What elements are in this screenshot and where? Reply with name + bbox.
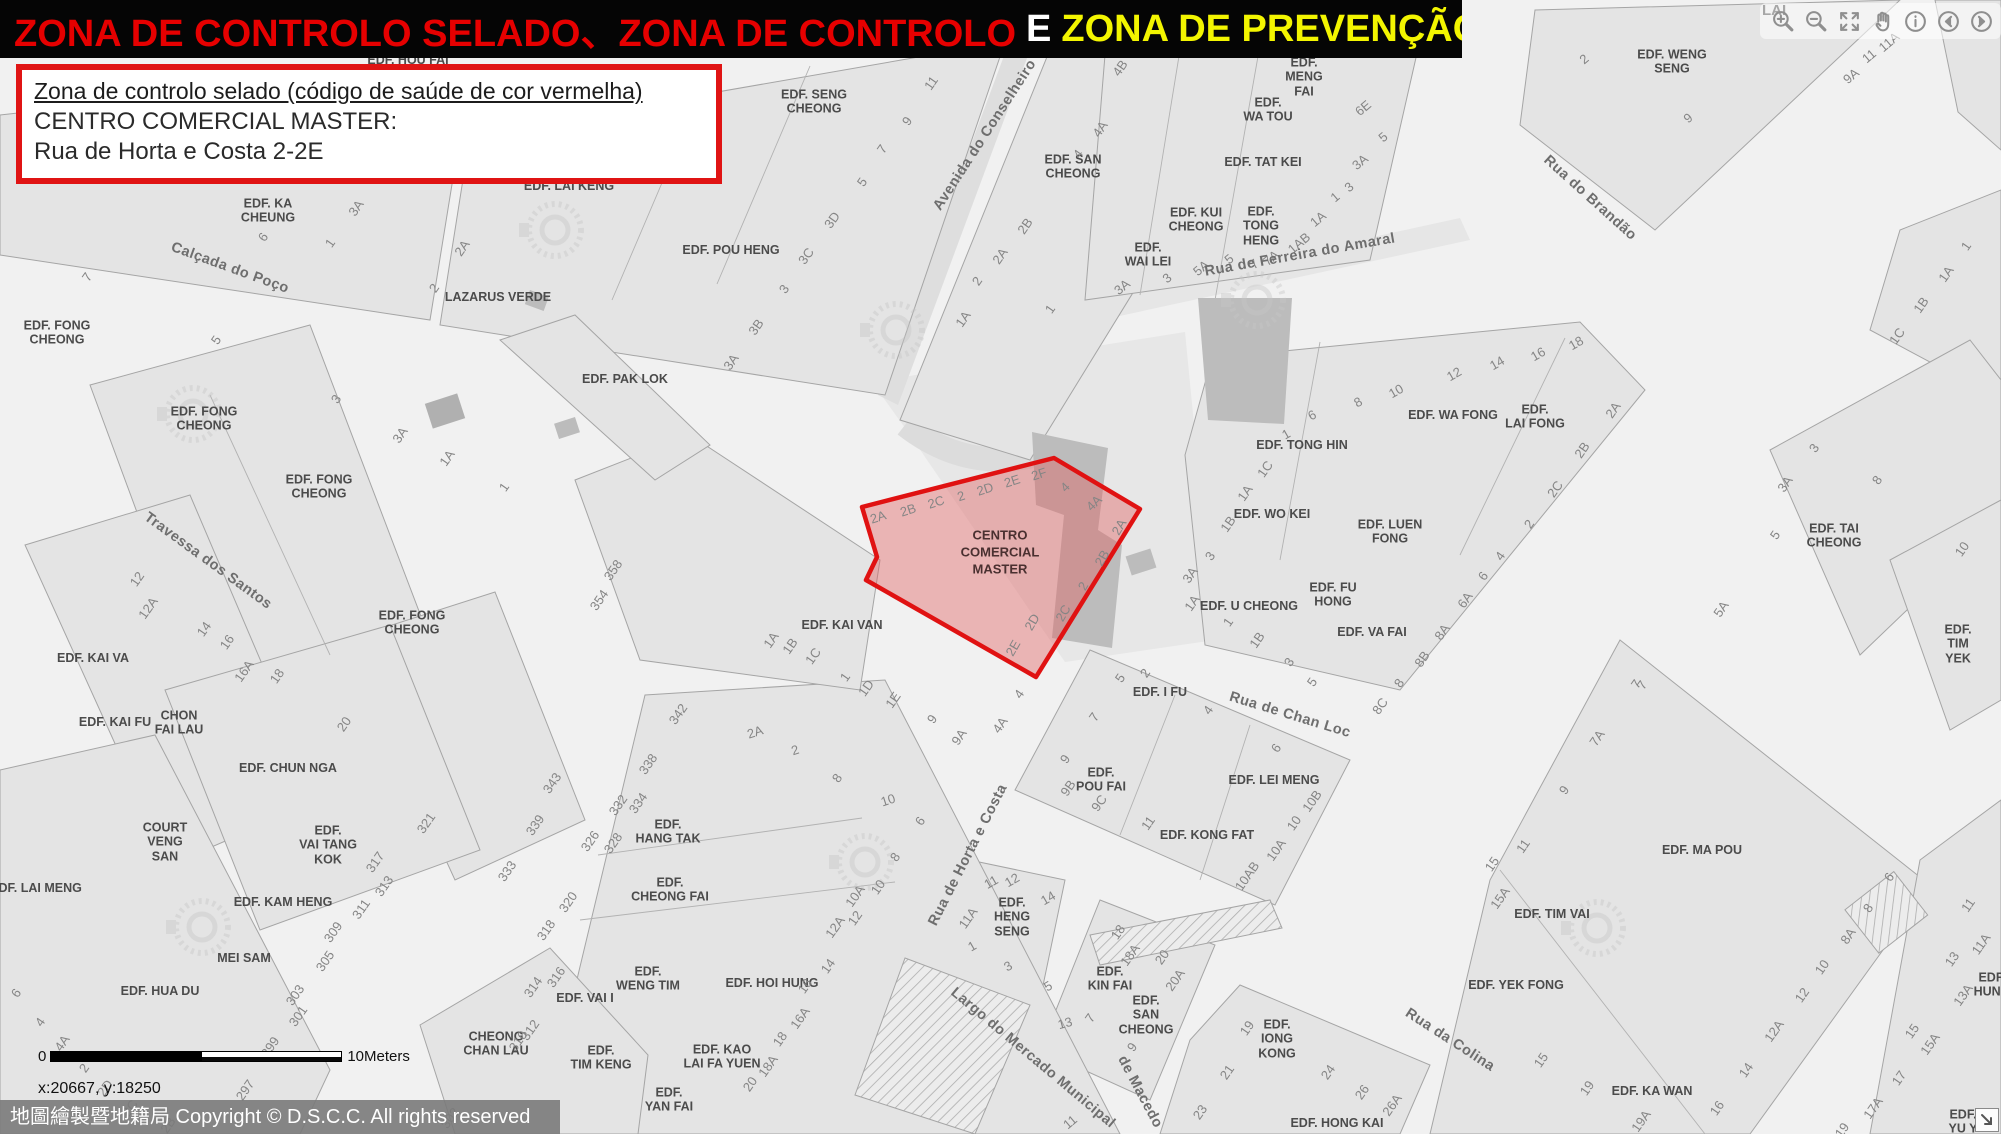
parcel-number: 2 [789, 742, 801, 759]
parcel-number: 2 [1137, 666, 1153, 681]
parcel-number: 7 [1628, 677, 1644, 692]
building-label: COURT VENG SAN [143, 820, 187, 863]
parcel-number: 2A [989, 245, 1010, 267]
parcel-number: 2A [1602, 399, 1623, 421]
building-label: EDF. VAI I [556, 991, 613, 1005]
parcel-number: 3A [1111, 276, 1133, 298]
building-label: EDF. WA TOU [1243, 96, 1292, 125]
parcel-number: 5 [1767, 528, 1783, 543]
parcel-number: 316 [544, 964, 569, 990]
parcel-number: 14 [818, 956, 839, 976]
parcel-number: 333 [495, 858, 520, 884]
building-label: EDF. WAI LEI [1125, 241, 1172, 270]
parcel-number: 320 [556, 889, 581, 915]
info-button[interactable] [1902, 8, 1929, 35]
parcel-number: 328 [601, 830, 626, 856]
parcel-number: 309 [321, 919, 346, 945]
parcel-number: 339 [523, 812, 548, 838]
scale-start-label: 0 [38, 1048, 46, 1065]
parcel-number: 2 [1521, 517, 1537, 532]
building-label: EDF. FONG CHEONG [171, 405, 238, 434]
parcel-number: 6 [8, 986, 24, 1001]
parcel-number: 14 [1487, 353, 1507, 373]
parcel-number: 5 [208, 333, 224, 348]
parcel-number: 8A [1431, 621, 1452, 643]
building-label: EDF. HONG KAI [1290, 1116, 1383, 1130]
parcel-number: 3 [1159, 270, 1174, 286]
building-label: EDF. MA POU [1662, 843, 1742, 857]
parcel-number: 14 [1736, 1060, 1757, 1080]
building-label: EDF. TAT KEI [1224, 155, 1301, 169]
parcel-number: 3 [328, 392, 344, 407]
resize-arrow-icon [1980, 1113, 1994, 1127]
parcel-number: 15A [1487, 884, 1513, 912]
pan-button[interactable] [1869, 8, 1896, 35]
map-toolbar [1760, 3, 2001, 39]
parcel-number: 1A [1935, 263, 1956, 285]
previous-view-icon [1936, 9, 1961, 34]
building-label: EDF. KAI VA [57, 651, 129, 665]
full-extent-icon [1837, 9, 1862, 34]
parcel-number: 18 [267, 666, 288, 686]
parcel-number: 19 [1832, 1120, 1853, 1134]
parcel-number: 16 [1528, 344, 1548, 364]
building-label: EDF. LEI MENG [1229, 773, 1320, 787]
parcel-number: 1 [1220, 615, 1236, 630]
parcel-number: 4A [1083, 492, 1105, 514]
parcel-number: 1AB [1285, 229, 1313, 256]
title-separator: E [1016, 8, 1061, 51]
building-label: EDF. KAM HENG [234, 895, 333, 909]
parcel-number: 13 [1056, 1014, 1074, 1032]
building-label: CHON FAI LAU [155, 709, 204, 738]
parcel-number: 16A [787, 1004, 813, 1032]
info-line-address: Rua de Horta e Costa 2-2E [34, 138, 704, 166]
parcel-number: 10 [1952, 539, 1973, 559]
parcel-number: 10 [1386, 381, 1406, 401]
building-label: EDF. PAK LOK [582, 372, 668, 386]
building-label: EDF. TAI CHEONG [1807, 522, 1862, 551]
building-label: EDF. U CHEONG [1200, 599, 1298, 613]
parcel-number: 4B [1109, 57, 1130, 79]
parcel-number: 6 [255, 230, 271, 245]
building-label: EDF. HENG SENG [994, 895, 1030, 938]
parcel-number: 2D [975, 479, 995, 498]
info-line-zone-type: Zona de controlo selado (código de saúde… [34, 78, 704, 105]
parcel-number: 3A [1774, 473, 1795, 495]
building-label: EDF. YEK FONG [1468, 978, 1564, 992]
building-label: EDF. CHUN NGA [239, 761, 337, 775]
street-label: de Macedo [1114, 1053, 1165, 1131]
parcel-number: 317 [363, 849, 388, 875]
parcel-number: 2E [1003, 637, 1024, 658]
parcel-number: 13A [1950, 981, 1976, 1009]
cursor-coordinates: x:20667, y:18250 [38, 1080, 161, 1098]
parcel-number: 11 [1513, 836, 1533, 856]
building-label: EDF. TONG HIN [1256, 438, 1347, 452]
building-label: EDF. IONG KONG [1258, 1017, 1296, 1060]
building-label: EDF. MENG FAI [1285, 55, 1323, 98]
parcel-number: 4 [1200, 703, 1216, 718]
parcel-number: 332 [606, 792, 631, 818]
parcel-number: 7A [1586, 727, 1607, 749]
parcel-number: 18 [770, 1029, 791, 1049]
parcel-number: 10 [879, 791, 897, 810]
parcel-number: 17A [1860, 1094, 1886, 1122]
parcel-number: 1C [1254, 458, 1276, 480]
parcel-number: 12 [1792, 985, 1813, 1005]
parcel-number: 2B [1571, 439, 1592, 461]
parcel-number: 5A [1710, 598, 1731, 620]
map-viewer: EDF. HOU FAIEDF. SENG CHEONGEDF. WENG SE… [0, 0, 2001, 1134]
building-label: EDF. HUNG [1974, 971, 2001, 1000]
building-label: EDF. KA CHEUNG [241, 197, 295, 226]
parcel-number: 1D [855, 677, 877, 699]
parcel-number: 5 [1304, 675, 1320, 690]
building-label: EDF. WO KEI [1234, 507, 1310, 521]
parcel-number: 8C [1369, 695, 1391, 717]
parcel-number: 12 [845, 908, 866, 928]
building-label: EDF. POU HENG [682, 243, 779, 257]
next-view-icon [1969, 9, 1994, 34]
parcel-number: 305 [313, 948, 338, 974]
parcel-number: 3B [745, 316, 766, 338]
street-label: Rua do Brandão [1540, 152, 1639, 244]
parcel-number: 9B [1057, 777, 1078, 799]
parcel-number: 3 [1001, 958, 1015, 975]
parcel-number: 321 [414, 810, 439, 836]
parcel-number: 10 [868, 877, 889, 897]
parcel-number: 9A [948, 726, 969, 748]
parcel-number: 7 [1634, 678, 1650, 693]
parcel-number: 3A [345, 197, 366, 219]
parcel-number: 10A [1263, 836, 1289, 864]
parcel-number: 5 [1112, 671, 1128, 686]
building-label: EDF. KAI FU [79, 715, 151, 729]
parcel-number: 1A [1234, 482, 1255, 504]
parcel-number: 15 [1902, 1021, 1923, 1041]
parcel-number: 311 [349, 896, 373, 922]
parcel-number: 2F [1029, 465, 1048, 484]
parcel-number: 4 [1492, 549, 1508, 564]
street-label: Avenida do Conselheiro [930, 57, 1040, 214]
parcel-number: 16A [231, 657, 257, 685]
parcel-number: 6 [1881, 870, 1897, 885]
parcel-number: 6 [1305, 407, 1319, 424]
parcel-number: 2 [955, 488, 967, 505]
zoom-out-button[interactable] [1803, 8, 1830, 35]
parcel-number: 2B [1014, 215, 1035, 237]
parcel-number: 2C [1052, 602, 1073, 624]
parcel-number: 2D [1021, 611, 1042, 633]
parcel-number: 8 [887, 850, 903, 865]
parcel-number: 18A [1117, 941, 1143, 969]
parcel-number: 3 [1341, 179, 1356, 195]
parcel-number: 12A [135, 594, 161, 622]
parcel-number: 2B [1092, 547, 1113, 568]
parcel-number: 354 [587, 587, 612, 613]
parcel-number: 1B [1246, 629, 1267, 651]
title-yellow-text: ZONA DE PREVENÇÃO [1061, 8, 1462, 51]
parcel-number: 1C [1886, 325, 1908, 347]
building-label: EDF. TONG HENG [1243, 204, 1279, 247]
parcel-number: 20 [1152, 947, 1173, 967]
parcel-number: 3C [795, 245, 817, 267]
zone-info-box: Zona de controlo selado (código de saúde… [16, 64, 722, 184]
building-label: EDF. FU HONG [1309, 581, 1356, 610]
parcel-number: 24 [1318, 1062, 1339, 1082]
building-label: CHEONG CHAN LAU [463, 1030, 528, 1059]
parcel-number: 312 [518, 1017, 543, 1043]
parcel-number: 313 [372, 873, 397, 899]
parcel-number: 1E [882, 689, 903, 711]
parcel-number: 2 [1075, 579, 1092, 593]
parcel-number: 1C [802, 645, 824, 667]
parcel-number: 5 [854, 175, 870, 190]
building-label: EDF. FONG CHEONG [24, 319, 91, 348]
parcel-number: 11 [981, 872, 1000, 892]
building-label: EDF. WENG TIM [616, 965, 680, 994]
parcel-number: 8 [1869, 473, 1885, 488]
parcel-number: 16 [1707, 1098, 1728, 1118]
building-label: EDF. YAN FAI [645, 1086, 693, 1115]
parcel-number: 1A [1307, 208, 1329, 230]
parcel-number: 1B [779, 635, 800, 657]
scale-bar-graphic [50, 1051, 342, 1062]
parcel-number: 6 [1475, 569, 1491, 584]
parcel-number: 9 [899, 114, 915, 129]
parcel-number: 303 [283, 982, 308, 1008]
parcel-number: 1A [436, 447, 457, 469]
parcel-number: 5 [1375, 129, 1390, 145]
parcel-number: 2C [926, 492, 946, 511]
scale-end-label: 10Meters [347, 1048, 410, 1065]
copyright-bar: 地圖繪製暨地籍局 Copyright © D.S.C.C. All rights… [0, 1100, 560, 1134]
building-label: EDF. SENG CHEONG [781, 88, 847, 117]
parcel-number: 3 [1202, 549, 1218, 564]
parcel-number: 11A [955, 905, 980, 932]
parcel-number: 19A [1628, 1107, 1654, 1134]
parcel-number: 1B [1910, 294, 1931, 316]
parcel-number: 6 [1268, 741, 1284, 756]
parcel-number: 11 [921, 73, 941, 93]
parcel-number: 358 [601, 557, 626, 583]
parcel-number: 11 [1859, 46, 1879, 66]
parcel-number: 1 [837, 670, 853, 685]
building-label: EDF. KIN FAI [1088, 965, 1132, 994]
building-label: EDF. HUA DU [121, 984, 200, 998]
parcel-number: 1 [965, 938, 979, 955]
previous-view-button[interactable] [1935, 8, 1962, 35]
parcel-number: 19 [1577, 1078, 1598, 1098]
building-label: EDF. SAN CHEONG [1045, 153, 1102, 182]
parcel-number: 326 [578, 828, 603, 854]
parcel-number: 8A [1837, 925, 1858, 947]
parcel-number: 2A [868, 507, 888, 526]
parcel-number: 8 [1391, 676, 1407, 691]
parcel-number: 11 [1060, 1112, 1080, 1132]
parcel-number: 12 [1444, 364, 1464, 384]
info-icon [1903, 9, 1928, 34]
parcel-number: 26 [1352, 1082, 1373, 1102]
parcel-number: 7 [1246, 256, 1261, 272]
street-label: Travessa dos Santos [141, 509, 275, 612]
parcel-number: 3D [821, 209, 843, 231]
building-label: EDF. TIM KENG [570, 1044, 631, 1073]
parcel-number: 5 [1221, 251, 1236, 267]
street-label: Largo do Mercado Municipal [948, 985, 1119, 1132]
parcel-number: 15 [1531, 1050, 1552, 1070]
resize-handle[interactable] [1975, 1108, 1999, 1132]
parcel-number: 11A [1968, 931, 1993, 958]
parcel-number: 334 [626, 790, 651, 816]
parcel-number: 4A [1089, 118, 1110, 140]
building-label: EDF. VA FAI [1337, 625, 1406, 639]
parcel-number: 4 [1070, 147, 1086, 162]
parcel-number: 18 [1566, 333, 1586, 353]
parcel-number: 1A [1181, 592, 1202, 614]
building-label: EDF. KA WAN [1612, 1084, 1693, 1098]
parcel-number: 9 [924, 712, 940, 727]
parcel-number: 8 [1860, 901, 1876, 916]
parcel-number: 16 [217, 632, 238, 652]
building-label: EDF. VAI TANG KOK [299, 823, 357, 866]
parcel-number: 20 [334, 714, 355, 734]
parcel-number: 3A [389, 424, 410, 446]
parcel-number: 1 [1327, 189, 1342, 205]
zoom-in-button[interactable] [1770, 8, 1797, 35]
parcel-number: 12 [127, 569, 148, 589]
building-label: EDF. TIM YEK [1937, 622, 1980, 665]
building-label: EDF. FONG CHEONG [379, 609, 446, 638]
parcel-number: 13 [1942, 949, 1963, 969]
parcel-number: 4 [1057, 479, 1073, 495]
building-label: EDF. KAO LAI FA YUEN [683, 1043, 760, 1072]
parcel-number: 15A [1917, 1030, 1943, 1058]
parcel-number: 4 [32, 1015, 48, 1030]
building-label: EDF. SAN CHEONG [1119, 993, 1174, 1036]
parcel-number: 9 [1124, 1040, 1140, 1055]
parcel-number: 3A [1349, 151, 1371, 173]
building-label: LAZARUS VERDE [445, 290, 551, 304]
building-label: EDF. I FU [1133, 685, 1187, 699]
parcel-number: 10B [1299, 787, 1325, 815]
parcel-number: 2B [898, 500, 918, 519]
parcel-number: 7 [1086, 710, 1102, 725]
parcel-number: 9C [1088, 792, 1110, 814]
building-label: EDF. LUEN FONG [1358, 518, 1423, 547]
building-label: EDF. FONG CHEONG [286, 473, 353, 502]
parcel-number: 314 [521, 974, 546, 1000]
building-label: EDF. CHEONG FAI [631, 876, 709, 905]
building-label: EDF. POU FAI [1076, 766, 1126, 795]
building-label: EDF. KAI VAN [801, 618, 882, 632]
parcel-number: 7A [1260, 247, 1282, 269]
parcel-number: 2 [1576, 51, 1591, 67]
parcel-number: 5 [1041, 978, 1055, 995]
parcel-number: 6 [912, 814, 928, 829]
parcel-number: 4 [1011, 687, 1027, 702]
parcel-number: 11 [1958, 895, 1978, 915]
parcel-number: 10 [1812, 957, 1833, 977]
parcel-number: 5A [1190, 257, 1212, 279]
parcel-number: 1 [496, 480, 512, 495]
parcel-number: 1 [1279, 426, 1293, 443]
building-label: EDF. KONG FAT [1160, 828, 1254, 842]
parcel-number: 20 [740, 1074, 761, 1094]
parcel-number: 4A [989, 714, 1010, 736]
parcel-number: 2A [1109, 516, 1130, 537]
parcel-number: 10 [1284, 813, 1305, 833]
parcel-number: 21 [1217, 1062, 1238, 1082]
parcel-number: 9 [1680, 110, 1695, 126]
parcel-number: 1 [1958, 239, 1974, 254]
next-view-button[interactable] [1968, 8, 1995, 35]
parcel-number: 2E [1002, 471, 1022, 490]
title-banner: ZONA DE CONTROLO SELADO、ZONA DE CONTROLO… [0, 0, 1462, 58]
full-extent-button[interactable] [1836, 8, 1863, 35]
title-red-text: ZONA DE CONTROLO SELADO、ZONA DE CONTROLO [14, 2, 1016, 57]
parcel-number: 10AB [1232, 859, 1263, 894]
parcel-number: 318 [534, 917, 559, 943]
parcel-number: 338 [636, 751, 661, 777]
parcel-number: 1 [1042, 302, 1058, 317]
building-label: MEI SAM [217, 951, 270, 965]
parcel-number: 8 [1351, 394, 1365, 411]
parcel-number: 2 [426, 281, 442, 296]
parcel-number: 11 [1138, 813, 1158, 833]
street-label: Calçada do Poço [169, 239, 291, 297]
building-label: EDF. WENG SENG [1637, 48, 1706, 77]
parcel-number: 8 [829, 771, 845, 786]
parcel-number: 19 [1237, 1018, 1258, 1038]
street-label: Rua da Colina [1402, 1005, 1497, 1075]
parcel-number: 14 [194, 619, 215, 639]
parcel-number: 26A [1379, 1091, 1405, 1119]
parcel-number: 9A [1840, 65, 1862, 87]
zoom-out-icon [1804, 9, 1829, 34]
parcel-number: 3 [1281, 655, 1297, 670]
street-label: Rua de Horta e Costa [925, 782, 1010, 929]
parcel-number: 310 [506, 1028, 531, 1054]
parcel-number: 15 [1482, 854, 1503, 874]
parcel-number: 12 [1002, 870, 1022, 890]
building-label: EDF. KUI CHEONG [1169, 206, 1224, 235]
building-label: EDF. TIM VAI [1514, 907, 1589, 921]
parcel-number: 3 [776, 282, 792, 297]
scale-bar: 0 10Meters [38, 1048, 410, 1065]
parcel-number: 9 [1057, 752, 1073, 767]
parcel-number: 18 [1108, 922, 1129, 942]
building-label: EDF. LAI FONG [1505, 403, 1565, 432]
parcel-number: 7 [874, 142, 890, 157]
pan-hand-icon [1870, 9, 1895, 34]
parcel-number: 1A [760, 629, 781, 651]
building-label: EDF. HANG TAK [635, 818, 700, 847]
building-label: EDF. WA FONG [1408, 408, 1498, 422]
street-label: Rua de Chan Loc [1227, 689, 1352, 741]
parcel-number: 1B [1217, 513, 1238, 535]
parcel-number: 9 [1556, 783, 1572, 798]
parcel-number: 301 [286, 1003, 311, 1029]
parcel-number: 23 [1190, 1102, 1211, 1122]
zone-name-label: CENTRO COMERCIAL MASTER [961, 528, 1040, 579]
parcel-number: 14 [1038, 888, 1058, 908]
parcel-number: 2A [745, 722, 765, 741]
parcel-number: 2 [969, 274, 985, 289]
parcel-number: 6A [1454, 589, 1475, 611]
parcel-number: 1A [952, 308, 973, 330]
